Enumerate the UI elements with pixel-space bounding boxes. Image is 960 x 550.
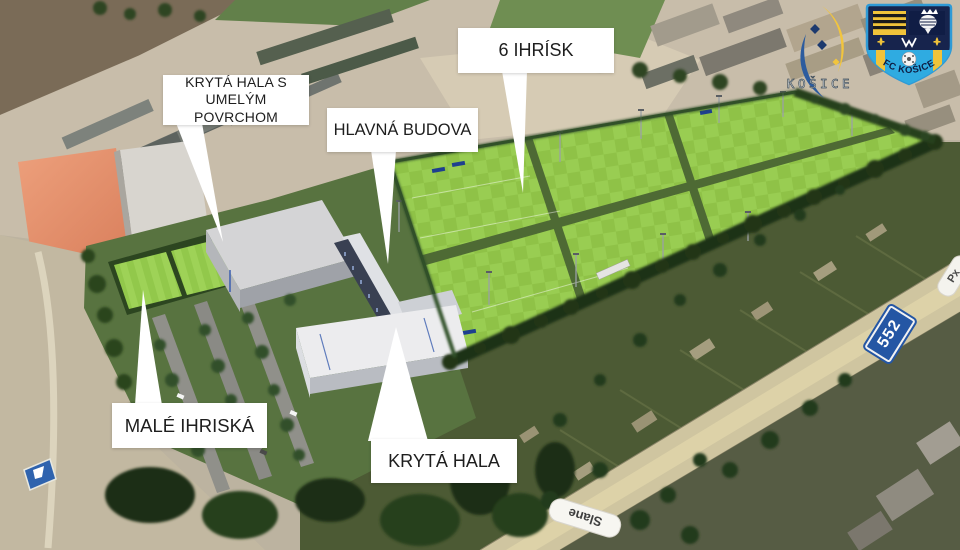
callout-indoor-hall-label: KRYTÁ HALA xyxy=(388,451,500,472)
callout-main-building: HLAVNÁ BUDOVA xyxy=(327,108,478,152)
callout-artificial-hall-line1: KRYTÁ HALA S xyxy=(185,74,287,92)
pointer-main-building xyxy=(371,150,396,264)
pointer-indoor-hall xyxy=(368,327,428,441)
slide: KOŠICE xyxy=(0,0,960,550)
pointer-small-pitches xyxy=(135,290,162,405)
callout-indoor-hall: KRYTÁ HALA xyxy=(371,439,517,483)
callout-six-pitches-label: 6 IHRÍSK xyxy=(498,40,573,61)
callout-artificial-hall-line2: UMELÝM POVRCHOM xyxy=(163,91,309,126)
callout-artificial-hall: KRYTÁ HALA S UMELÝM POVRCHOM xyxy=(163,75,309,125)
callout-main-building-label: HLAVNÁ BUDOVA xyxy=(334,121,472,140)
callout-small-pitches: MALÉ IHRISKÁ xyxy=(112,403,267,448)
callout-six-pitches: 6 IHRÍSK xyxy=(458,28,614,73)
pointer-six-pitches xyxy=(502,71,527,193)
callout-small-pitches-label: MALÉ IHRISKÁ xyxy=(125,415,255,437)
pointer-artificial-hall xyxy=(176,123,223,242)
